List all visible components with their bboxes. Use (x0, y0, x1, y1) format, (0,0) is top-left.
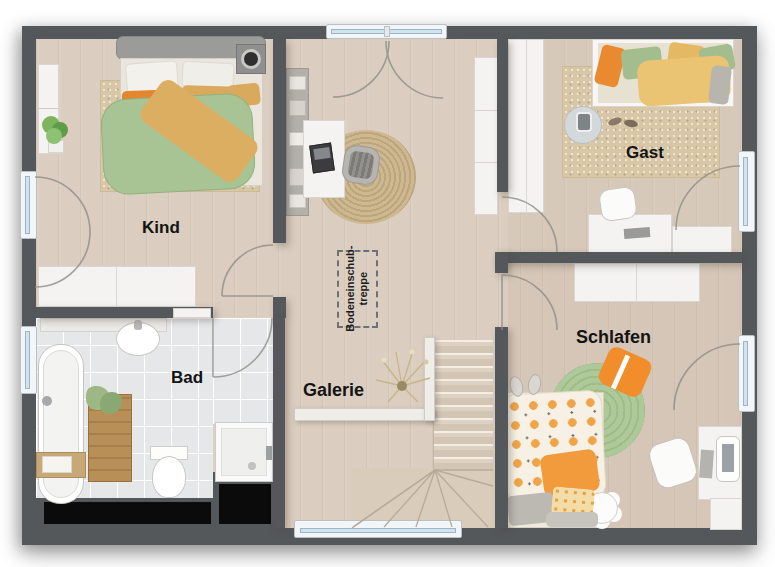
attic-hatch-label: Bodeneinschub- treppe (345, 246, 370, 332)
attic-hatch-label-line2: treppe (358, 272, 370, 306)
bad-wall-shelf (173, 308, 211, 318)
wall-gast-galerie (497, 39, 508, 192)
wall-bad-galerie (273, 318, 285, 528)
shower-fixture (266, 446, 272, 460)
kind-room-label: Kind (142, 218, 180, 238)
balcony-door-mullion (384, 26, 390, 37)
kind-speaker (241, 49, 261, 69)
gast-desk-chair (598, 186, 638, 223)
floor-plan: Kind Galerie Bodeneinschub- treppe Gast (0, 0, 775, 567)
kind-sideboard (38, 266, 196, 307)
gast-sideboard (672, 226, 732, 253)
kind-plant-leaf-3 (46, 128, 62, 144)
galerie-cabinet-divider-2 (474, 162, 498, 163)
bad-window-glazing (25, 331, 30, 389)
attic-hatch-label-line1: Bodeneinschub- (345, 246, 357, 332)
staircase-straight-flight (433, 340, 493, 470)
shower-drain (248, 462, 256, 470)
schlafen-pillow-gray-2 (546, 512, 598, 527)
schlafen-monitor-screen (722, 444, 734, 472)
galerie-armchair-cushion (347, 150, 374, 179)
roof-void-right (219, 484, 271, 524)
gast-table-lamp (576, 112, 592, 132)
wall-schlafen-stair-lower (495, 327, 508, 528)
roof-void-left (44, 502, 211, 524)
kind-wardrobe-divider (38, 108, 59, 109)
bathtub-caddy-towels (42, 456, 72, 473)
galerie-room-label: Galerie (303, 380, 364, 401)
schlafen-wardrobe-divider (636, 263, 637, 302)
galerie-window-glazing (300, 528, 456, 533)
gast-window-glazing (743, 157, 748, 226)
stair-winder-floor (352, 468, 493, 528)
wall-kind-galerie-stub (273, 297, 286, 318)
schlafen-keyboard (699, 450, 714, 479)
gast-room-label: Gast (626, 143, 664, 163)
gast-wardrobe-divider (526, 39, 527, 213)
attic-hatch-outline: Bodeneinschub- treppe (337, 250, 378, 328)
galerie-laptop-screen (313, 147, 330, 160)
bathtub-faucet (42, 396, 52, 406)
bad-tile-floor-right (213, 318, 273, 424)
schlafen-window-glazing (743, 341, 748, 406)
galerie-cabinet-divider-1 (474, 110, 498, 111)
wall-schlafen-stair-upper (495, 252, 508, 273)
bad-sink-faucet (134, 320, 142, 330)
bad-room-label: Bad (171, 368, 203, 388)
gast-keyboard (624, 227, 651, 239)
galerie-tall-cabinet (474, 57, 498, 215)
galerie-books-2 (289, 100, 306, 116)
kind-window-glazing (25, 176, 30, 234)
kind-sideboard-divider (116, 266, 117, 307)
stair-parapet-horizontal (294, 408, 434, 421)
gast-blanket-roll-gray (708, 65, 732, 105)
shower-tray (221, 428, 267, 476)
schlafen-desk-return (710, 498, 742, 530)
schlafen-room-label: Schlafen (576, 327, 651, 348)
toilet-bowl (152, 456, 186, 498)
wall-gast-schlafen (495, 252, 742, 263)
wall-kind-galerie (273, 39, 286, 243)
schlafen-wardrobe (574, 263, 700, 302)
stair-parapet-vertical (424, 337, 435, 421)
galerie-books-1 (289, 76, 306, 90)
